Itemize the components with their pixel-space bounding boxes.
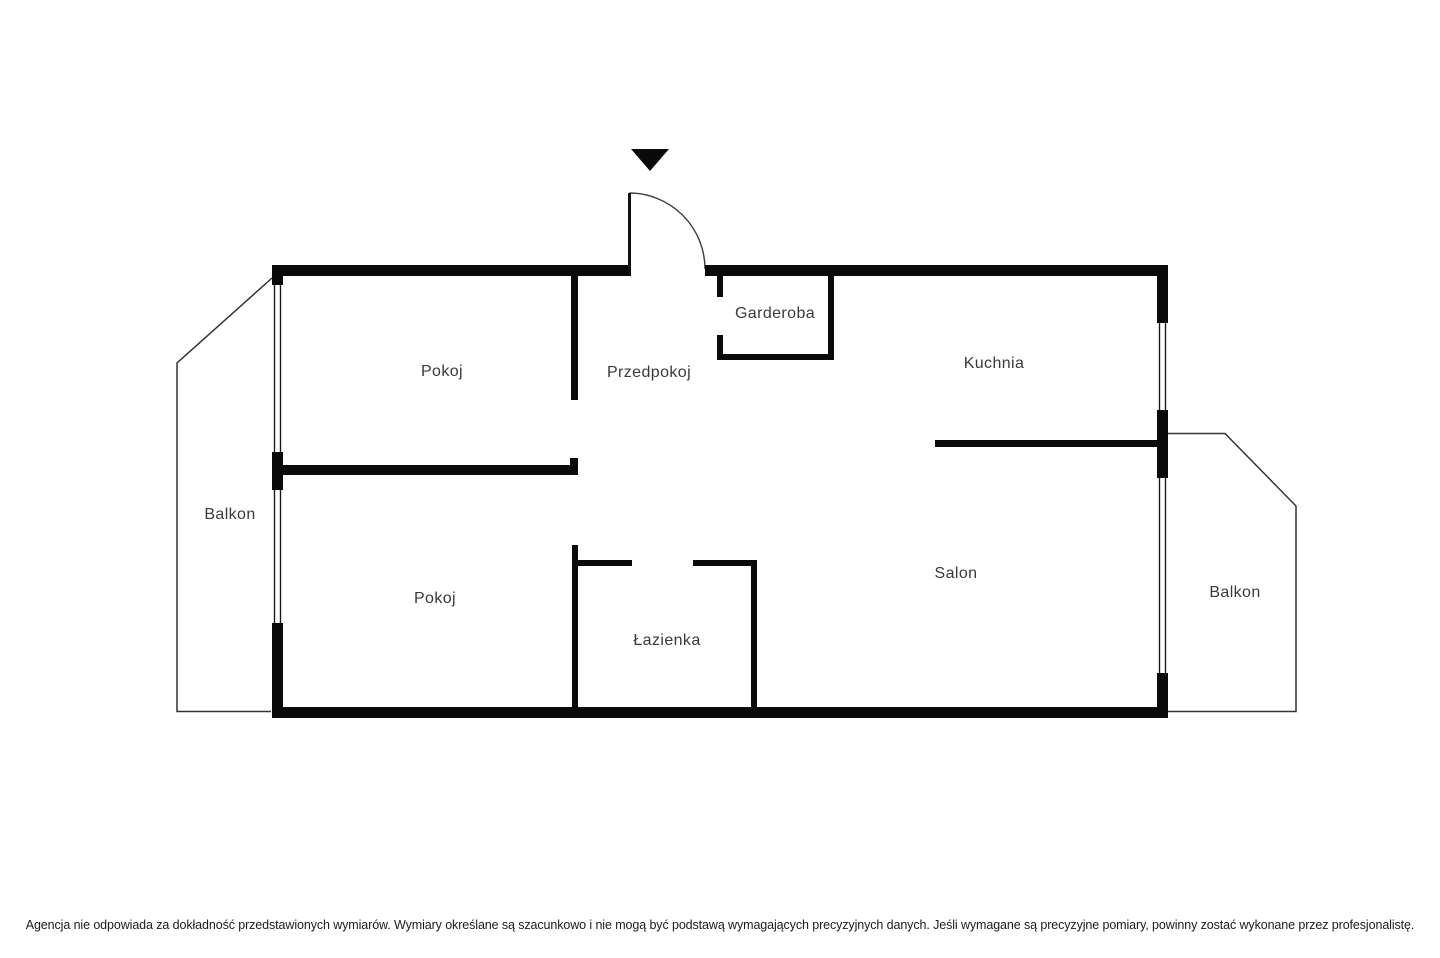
door-swing-icon (630, 193, 706, 276)
floor-plan-drawing (0, 0, 1440, 958)
disclaimer-text: Agencja nie odpowiada za dokładność prze… (20, 918, 1420, 932)
entrance-arrow-icon (631, 149, 669, 171)
balcony-outline-left (177, 278, 272, 712)
room-label-lazienka: Łazienka (633, 632, 700, 650)
room-label-kuchnia: Kuchnia (964, 355, 1025, 373)
room-label-balkon-left: Balkon (204, 506, 255, 524)
balcony-outline-right (1168, 434, 1296, 712)
room-label-przedpokoj: Przedpokoj (607, 364, 691, 382)
room-label-balkon-right: Balkon (1209, 584, 1260, 602)
room-label-garderoba: Garderoba (735, 305, 815, 323)
outer-walls (272, 265, 1168, 718)
floor-plan-canvas: Pokoj Przedpokoj Garderoba Kuchnia Salon… (0, 0, 1440, 958)
room-label-pokoj-top: Pokoj (421, 363, 463, 381)
room-label-pokoj-bottom: Pokoj (414, 590, 456, 608)
room-label-salon: Salon (935, 565, 978, 583)
interior-walls (283, 276, 1157, 708)
